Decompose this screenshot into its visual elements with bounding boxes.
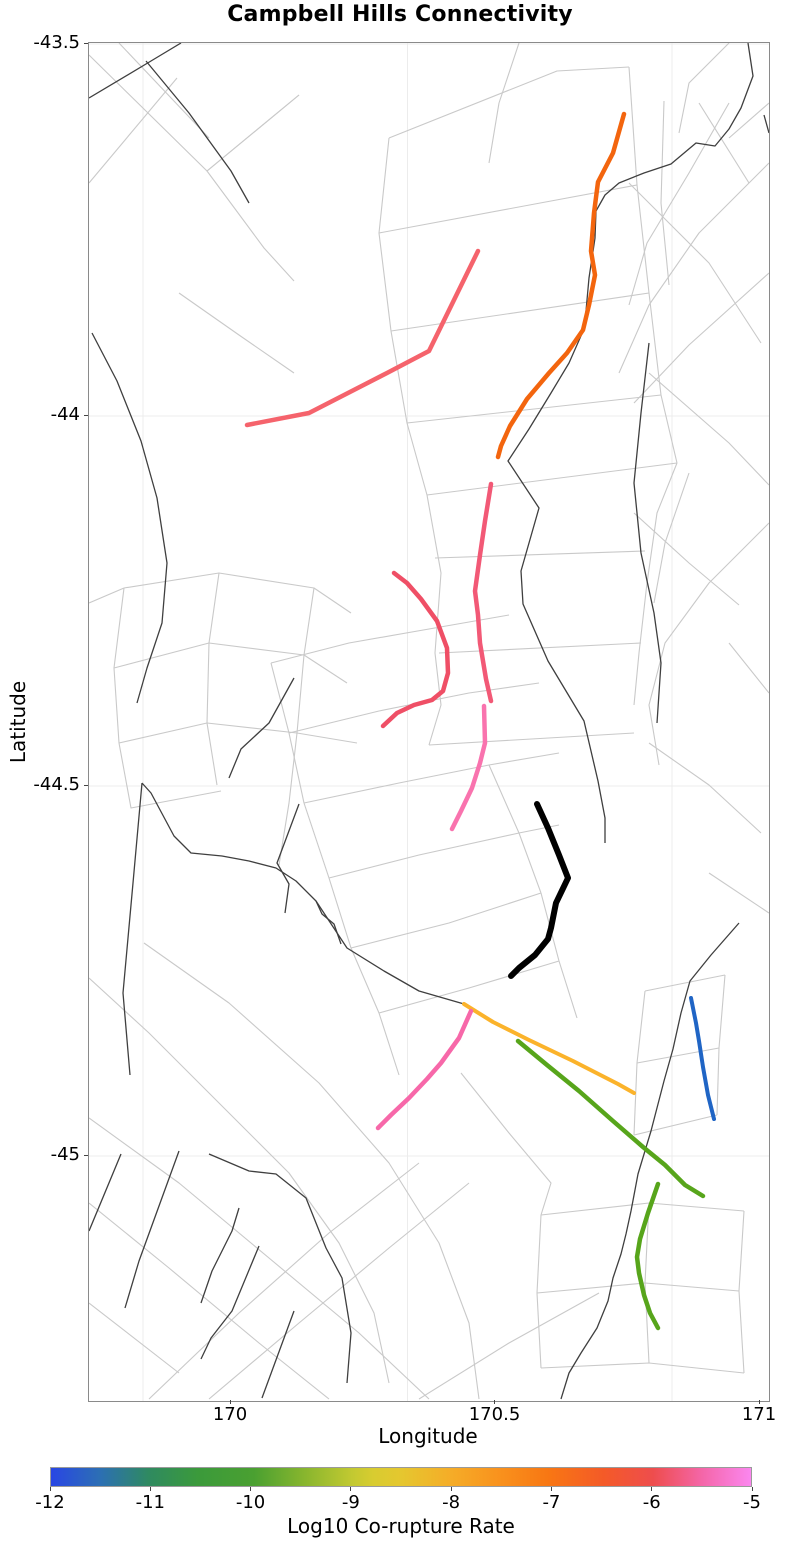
colorbar-tick-label: -8 (421, 1492, 481, 1514)
rupture-line-east-blue (691, 998, 714, 1119)
fault-trace-light (89, 55, 299, 171)
fault-trace-light (649, 523, 769, 765)
fault-trace-light (419, 1293, 599, 1399)
colorbar-tick-label: -10 (221, 1492, 281, 1514)
colorbar-label: Log10 Co-rupture Rate (50, 1514, 752, 1538)
y-tick-mark (84, 785, 88, 786)
fault-trace-dark (142, 783, 341, 944)
fault-trace-light (89, 978, 389, 1383)
fault-trace-light (427, 463, 677, 495)
colorbar-tick-label: -9 (321, 1492, 381, 1514)
fault-trace-dark (764, 115, 769, 133)
x-tick-mark (230, 1400, 231, 1404)
fault-trace-light (489, 43, 519, 163)
rupture-line-southeast-green-long (518, 1041, 703, 1196)
x-axis-label: Longitude (88, 1424, 768, 1448)
fault-trace-light (629, 67, 677, 463)
x-tick-mark (759, 1400, 760, 1404)
rupture-line-southeast-green-curve (637, 1184, 658, 1328)
fault-trace-light (119, 43, 209, 138)
fault-trace-light (541, 893, 577, 1018)
fault-trace-light (351, 948, 399, 1075)
fault-trace-light (645, 975, 725, 991)
fault-trace-light (89, 1303, 179, 1373)
fault-trace-light (89, 588, 124, 603)
colorbar-tick-mark (350, 1487, 351, 1491)
fault-trace-light (119, 743, 221, 808)
rupture-line-central-red-vertical (475, 484, 491, 701)
fault-trace-light (89, 78, 177, 183)
y-tick-mark (84, 415, 88, 416)
fault-trace-light (649, 743, 761, 833)
fault-trace-light (119, 723, 357, 743)
fault-trace-light (537, 1215, 541, 1368)
colorbar-tick-mark (150, 1487, 151, 1491)
fault-trace-dark (561, 923, 739, 1399)
fault-trace-light (435, 551, 645, 558)
fault-trace-light (629, 103, 729, 305)
colorbar-tick-label: -5 (722, 1492, 782, 1514)
rupture-line-northwest-salmon (247, 251, 478, 425)
fault-trace-dark (229, 678, 294, 778)
fault-trace-light (429, 733, 634, 745)
fault-trace-light (634, 463, 677, 705)
colorbar-tick-mark (551, 1487, 552, 1491)
fault-trace-dark (316, 901, 464, 1004)
fault-trace-dark (125, 1151, 179, 1308)
x-tick-label: 170.5 (455, 1404, 535, 1426)
fault-trace-light (709, 873, 769, 913)
fault-trace-light (289, 683, 539, 733)
fault-trace-dark (262, 1311, 294, 1398)
y-tick-label: -45 (10, 1144, 80, 1166)
x-tick-label: 171 (719, 1404, 799, 1426)
fault-trace-light (209, 1183, 469, 1399)
rupture-line-central-red-hook (383, 573, 448, 726)
fault-trace-light (679, 43, 729, 133)
y-tick-label: -44.5 (10, 774, 80, 796)
fault-trace-light (329, 825, 559, 878)
colorbar-tick-label: -6 (622, 1492, 682, 1514)
fault-trace-light (619, 163, 769, 373)
fault-trace-dark (92, 333, 167, 703)
fault-trace-light (461, 1073, 551, 1215)
map-plot-area (88, 42, 770, 1402)
colorbar-gradient (50, 1467, 752, 1487)
y-tick-label: -43.5 (10, 32, 80, 54)
colorbar-tick-label: -7 (521, 1492, 581, 1514)
y-axis-label: Latitude (6, 652, 30, 792)
x-tick-label: 170 (190, 1404, 270, 1426)
chart-title: Campbell Hills Connectivity (0, 2, 800, 27)
fault-trace-light (729, 643, 769, 693)
fault-trace-light (537, 1283, 739, 1293)
fault-trace-light (389, 67, 629, 138)
colorbar-tick-mark (752, 1487, 753, 1491)
y-tick-mark (84, 43, 88, 44)
colorbar-tick-label: -12 (20, 1492, 80, 1514)
fault-trace-light (279, 733, 297, 865)
fault-trace-dark (508, 43, 753, 843)
colorbar-tick-mark (250, 1487, 251, 1491)
rupture-line-south-amber (464, 1004, 634, 1093)
fault-trace-light (407, 395, 661, 423)
fault-trace-light (144, 943, 479, 1399)
fault-trace-dark (201, 1208, 239, 1303)
fault-trace-light (634, 1115, 717, 1135)
fault-trace-light (207, 573, 219, 785)
fault-map-canvas (89, 43, 769, 1401)
fault-trace-light (661, 101, 669, 285)
colorbar-tick-mark (50, 1487, 51, 1491)
fault-trace-light (439, 643, 641, 653)
fault-trace-dark (123, 783, 142, 1075)
fault-trace-light (351, 893, 541, 948)
fault-trace-light (649, 373, 769, 485)
fault-trace-light (629, 183, 761, 343)
colorbar-tick-mark (651, 1487, 652, 1491)
colorbar-tick-mark (451, 1487, 452, 1491)
fault-trace-light (207, 95, 299, 281)
rupture-line-central-pink (452, 706, 485, 829)
fault-trace-light (179, 293, 294, 373)
figure: Campbell Hills Connectivity Latitude Lon… (0, 0, 800, 1548)
fault-trace-light (729, 103, 769, 138)
rupture-line-south-hot-pink (378, 1011, 471, 1128)
y-tick-label: -44 (10, 404, 80, 426)
fault-trace-light (89, 1203, 329, 1399)
fault-trace-light (717, 975, 725, 1115)
colorbar-tick-label: -11 (120, 1492, 180, 1514)
fault-trace-light (379, 138, 427, 495)
fault-trace-light (489, 765, 541, 893)
x-tick-mark (494, 1400, 495, 1404)
fault-trace-dark (89, 1154, 121, 1231)
fault-trace-dark (146, 61, 249, 203)
fault-trace-light (304, 803, 351, 948)
fault-trace-light (304, 753, 559, 803)
fault-trace-light (391, 293, 649, 331)
fault-trace-light (541, 1203, 744, 1215)
fault-trace-light (124, 573, 351, 613)
fault-trace-light (637, 1048, 719, 1063)
y-tick-mark (84, 1155, 88, 1156)
fault-trace-light (739, 1211, 744, 1373)
